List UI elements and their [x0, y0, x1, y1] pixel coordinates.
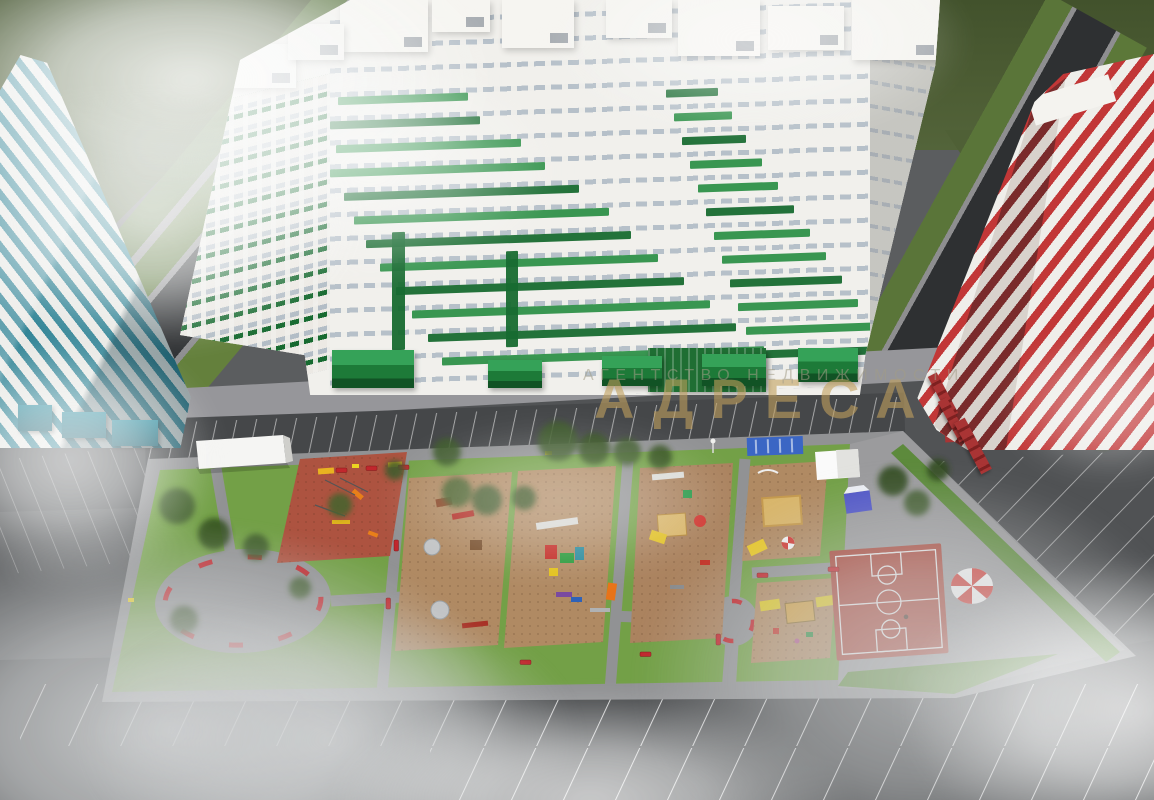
basketball-court: [829, 543, 948, 661]
rooftop-box: [432, 0, 490, 32]
rooftop-box: [288, 24, 344, 60]
entrance-canopy: [62, 412, 106, 438]
rooftop-box: [606, 0, 672, 38]
rooftop-box: [678, 0, 760, 56]
dumpster-station: [747, 436, 804, 456]
watermark-subtitle: АГЕНТСТВО НЕДВИЖИМОСТИ: [577, 367, 965, 385]
rooftop-box: [852, 0, 940, 60]
entrance-canopy: [332, 350, 414, 388]
rooftop-box: [340, 0, 428, 52]
umbrella-red-white: [951, 568, 993, 604]
utility-building: [196, 435, 293, 474]
sandbox-zone: [742, 461, 828, 561]
residential-complex-render: АДРЕСА АГЕНТСТВО НЕДВИЖИМОСТИ: [0, 0, 1154, 800]
entrance-canopy: [488, 360, 542, 388]
rooftop-box: [502, 0, 574, 48]
rooftop-box: [768, 6, 844, 50]
building-main-facade: [330, 0, 870, 404]
building-green-white: [170, 0, 940, 395]
playground-zone-3: [630, 463, 733, 643]
entrance-canopy: [112, 420, 158, 446]
white-tent: [815, 449, 860, 480]
entrance-canopy: [18, 405, 52, 431]
toddler-zone: [751, 578, 837, 663]
